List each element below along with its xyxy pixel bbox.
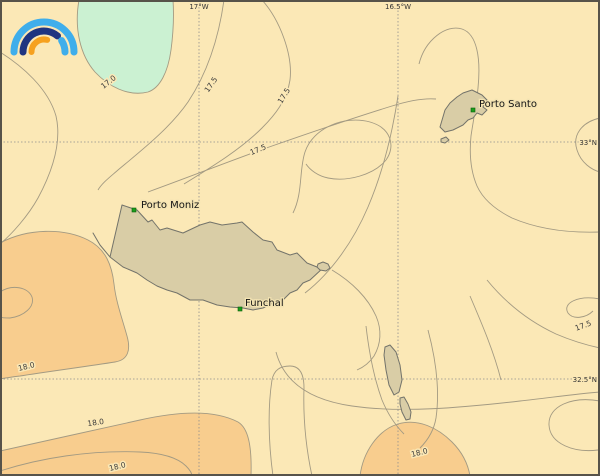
porto-santo-label: Porto Santo — [479, 99, 537, 110]
sea-background — [0, 0, 600, 476]
porto-santo-marker — [471, 108, 475, 112]
parallel-label-32-5n: 32.5°N — [573, 376, 597, 384]
parallel-label-33n: 33°N — [579, 139, 597, 147]
funchal-marker — [238, 307, 242, 311]
funchal-label: Funchal — [245, 298, 284, 309]
porto-moniz-label: Porto Moniz — [141, 200, 199, 211]
meridian-label-17w: 17°W — [189, 3, 208, 11]
map-canvas: 17.0 17.5 17.5 17.5 17.5 18.0 18.0 18.0 … — [0, 0, 600, 476]
porto-moniz-marker — [132, 208, 136, 212]
logo-right-arc-icon — [62, 41, 65, 52]
weather-map: 17.0 17.5 17.5 17.5 17.5 18.0 18.0 18.0 … — [0, 0, 600, 476]
meridian-label-16-5w: 16.5°W — [385, 3, 411, 11]
